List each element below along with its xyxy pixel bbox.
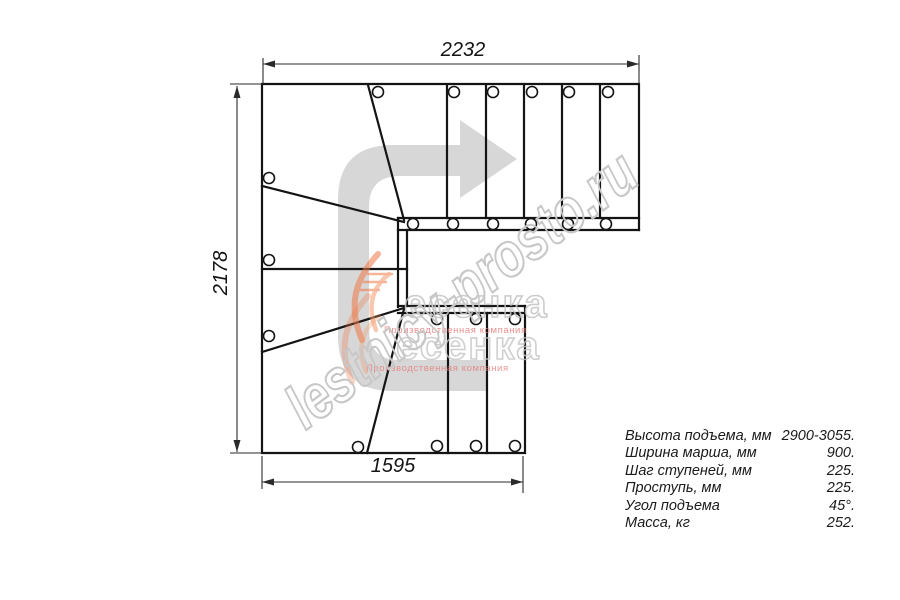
dimension-value-bottom-width: 1595 <box>358 455 428 478</box>
spec-row-step-pitch: Шаг ступеней, мм 225. <box>625 463 855 480</box>
spec-row-height: Высота подъема, мм 2900-3055. <box>625 428 855 445</box>
spec-table: Высота подъема, мм 2900-3055. Ширина мар… <box>625 428 855 532</box>
spec-value: 252. <box>827 515 855 532</box>
spec-label: Высота подъема, мм <box>625 428 772 445</box>
spec-row-angle: Угол подъема 45°. <box>625 498 855 515</box>
spec-value: 2900-3055. <box>782 428 855 445</box>
spec-label: Масса, кг <box>625 515 690 532</box>
stair-outline-and-steps <box>262 84 639 453</box>
dimension-value-left-height: 2178 <box>210 238 232 308</box>
dimension-value-top-width: 2232 <box>428 39 498 62</box>
staircase-drawing-canvas: 2232 2178 1595 есенка Производственная к… <box>0 0 900 600</box>
spec-value: 45°. <box>829 498 855 515</box>
spec-row-march-width: Ширина марша, мм 900. <box>625 445 855 462</box>
spec-value: 900. <box>827 445 855 462</box>
spec-value: 225. <box>827 463 855 480</box>
direction-arrow-icon <box>338 120 517 391</box>
spec-label: Шаг ступеней, мм <box>625 463 752 480</box>
spec-row-tread: Проступь, мм 225. <box>625 480 855 497</box>
spec-label: Угол подъема <box>625 498 720 515</box>
spec-label: Проступь, мм <box>625 480 721 497</box>
dimension-arrowheads <box>234 61 640 486</box>
spec-row-mass: Масса, кг 252. <box>625 515 855 532</box>
spec-label: Ширина марша, мм <box>625 445 757 462</box>
dimension-lines <box>230 55 639 493</box>
spec-value: 225. <box>827 480 855 497</box>
